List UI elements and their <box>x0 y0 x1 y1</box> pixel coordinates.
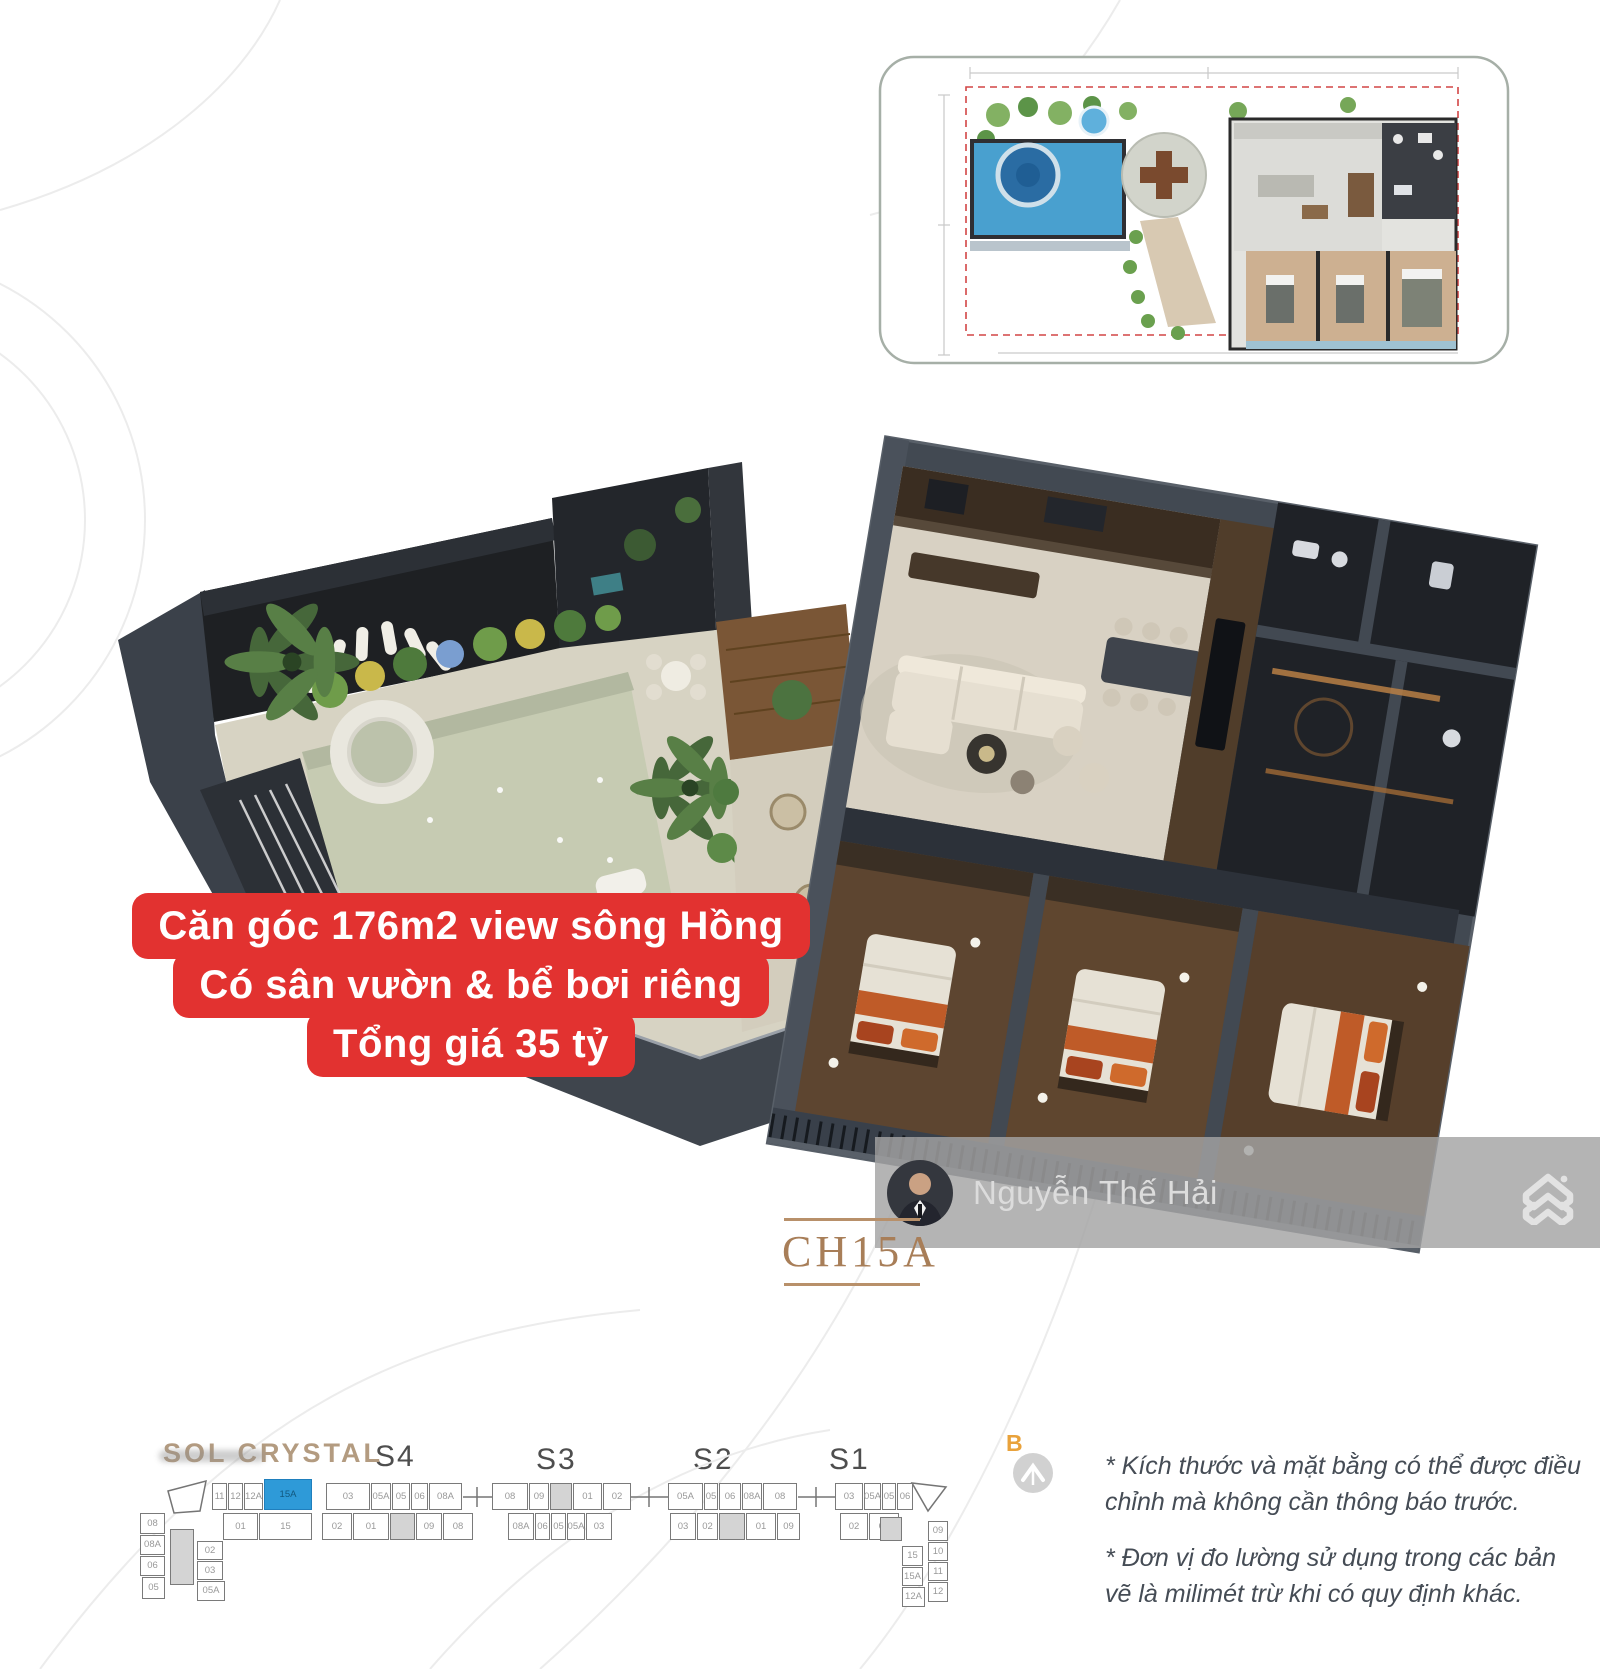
unit-05: 05 <box>704 1483 718 1510</box>
unit-12: 12 <box>928 1582 948 1602</box>
disclaimer-note-2: * Đơn vị đo lường sử dụng trong các bản … <box>1105 1540 1585 1612</box>
promo-line-1: Căn góc 176m2 view sông Hồng <box>132 893 809 959</box>
unit-06: 06 <box>897 1483 913 1510</box>
promo-banner: Căn góc 176m2 view sông Hồng Có sân vườn… <box>135 893 807 1077</box>
project-name: SOL CRYSTAL <box>163 1438 383 1469</box>
unit-10: 10 <box>928 1542 948 1561</box>
agent-name: Nguyễn Thế Hải <box>973 1174 1218 1212</box>
unit-12: 12 <box>228 1483 243 1510</box>
building-unit-strip: 111212A15A0305A050608A0809010205A050608A… <box>140 1473 960 1613</box>
unit-03: 03 <box>670 1513 696 1540</box>
rule-bottom <box>784 1283 920 1286</box>
unit-code: CH15A <box>782 1221 922 1283</box>
unit-05: 05 <box>392 1483 410 1510</box>
unit-09: 09 <box>529 1483 549 1510</box>
unit-01: 01 <box>353 1513 389 1540</box>
unit-09: 09 <box>777 1513 800 1540</box>
unit-05: 05 <box>882 1483 896 1510</box>
avatar <box>887 1160 953 1226</box>
unit-05A: 05A <box>197 1581 225 1601</box>
unit-block <box>390 1513 415 1540</box>
unit-08A: 08A <box>742 1483 762 1510</box>
unit-06: 06 <box>535 1513 550 1540</box>
promo-line-2: Có sân vườn & bể bơi riêng <box>173 952 768 1018</box>
unit-12A: 12A <box>244 1483 263 1510</box>
unit-08A: 08A <box>508 1513 534 1540</box>
unit-block <box>170 1529 194 1585</box>
unit-block <box>880 1517 902 1541</box>
unit-08: 08 <box>763 1483 797 1510</box>
unit-05: 05 <box>551 1513 566 1540</box>
unit-03: 03 <box>326 1483 370 1510</box>
brand-smudge <box>159 1450 265 1462</box>
unit-02: 02 <box>603 1483 631 1510</box>
disclaimer-note-1: * Kích thước và mặt bằng có thể được điề… <box>1105 1448 1585 1520</box>
unit-15A: 15A <box>902 1567 923 1586</box>
inset-apartment <box>1230 119 1456 349</box>
listing-image: Căn góc 176m2 view sông Hồng Có sân vườn… <box>0 0 1600 1669</box>
unit-02: 02 <box>322 1513 352 1540</box>
unit-15: 15 <box>902 1546 923 1566</box>
unit-03: 03 <box>197 1561 223 1580</box>
unit-15A: 15A <box>264 1479 312 1510</box>
floor-plan-inset <box>878 55 1510 365</box>
unit-03: 03 <box>835 1483 863 1510</box>
unit-09: 09 <box>928 1521 948 1541</box>
unit-08A: 08A <box>429 1483 462 1510</box>
agent-watermark-bar: Nguyễn Thế Hải <box>875 1137 1600 1248</box>
unit-02: 02 <box>840 1513 868 1540</box>
unit-01: 01 <box>573 1483 602 1510</box>
unit-06: 06 <box>140 1556 165 1576</box>
unit-05: 05 <box>142 1577 165 1599</box>
house-chevrons-icon <box>1518 1161 1578 1225</box>
unit-06: 06 <box>411 1483 428 1510</box>
unit-05A: 05A <box>668 1483 703 1510</box>
unit-12A: 12A <box>902 1587 925 1607</box>
unit-09: 09 <box>416 1513 442 1540</box>
unit-01: 01 <box>223 1513 258 1540</box>
unit-08: 08 <box>443 1513 473 1540</box>
unit-02: 02 <box>697 1513 718 1540</box>
living-room <box>844 466 1274 870</box>
unit-05A: 05A <box>371 1483 391 1510</box>
unit-02: 02 <box>197 1541 223 1560</box>
unit-03: 03 <box>586 1513 612 1540</box>
unit-08A: 08A <box>140 1535 165 1555</box>
unit-block <box>550 1483 572 1510</box>
unit-08: 08 <box>140 1513 165 1534</box>
unit-block <box>719 1513 745 1540</box>
unit-11: 11 <box>212 1483 227 1510</box>
unit-code-label: CH15A <box>782 1218 922 1286</box>
unit-05A: 05A <box>864 1483 881 1510</box>
unit-08: 08 <box>492 1483 528 1510</box>
unit-06: 06 <box>719 1483 741 1510</box>
north-arrow-icon <box>1012 1452 1054 1494</box>
agent-photo <box>887 1160 953 1226</box>
unit-11: 11 <box>928 1562 948 1581</box>
unit-01: 01 <box>746 1513 776 1540</box>
interior-wing <box>767 437 1536 1252</box>
unit-15: 15 <box>259 1513 312 1540</box>
promo-line-3: Tổng giá 35 tỷ <box>307 1011 635 1077</box>
unit-05A: 05A <box>567 1513 585 1540</box>
